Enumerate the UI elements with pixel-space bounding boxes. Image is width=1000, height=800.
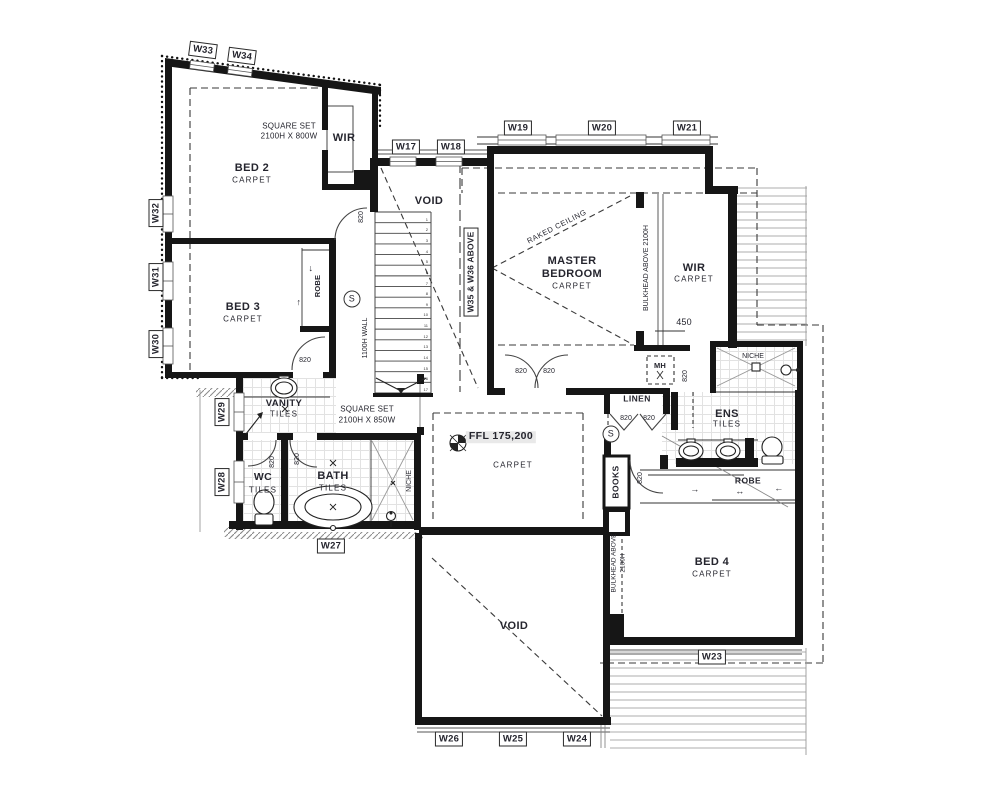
door-width-bed3: 820 bbox=[299, 357, 311, 365]
window-label-w20: W20 bbox=[588, 121, 616, 136]
door-width-master-2: 820 bbox=[543, 368, 555, 376]
smoke-alarm-symbol-linen: S bbox=[603, 426, 620, 443]
robe-arrow-up-icon: ↑ bbox=[297, 298, 302, 308]
window-label-w31: W31 bbox=[149, 263, 164, 291]
niche-label-bath: NICHE bbox=[406, 470, 414, 492]
door-width-wc: 820 bbox=[269, 456, 277, 468]
robe-arrow-both-icon: ↔ bbox=[735, 487, 744, 497]
door-width-linen-2: 820 bbox=[643, 415, 655, 423]
finish-label-bed2: CARPET bbox=[232, 177, 272, 186]
robe-label-bed4: ROBE bbox=[735, 476, 761, 485]
window-label-w19: W19 bbox=[504, 121, 532, 136]
window-label-w28: W28 bbox=[215, 468, 230, 496]
room-label-wir-master: WIR bbox=[683, 262, 706, 274]
window-label-w30: W30 bbox=[149, 330, 164, 358]
note-1100h-wall: 1100H WALL bbox=[362, 318, 370, 359]
finish-label-hall: CARPET bbox=[493, 462, 533, 471]
window-label-w32: W32 bbox=[149, 199, 164, 227]
window-label-w25: W25 bbox=[499, 732, 527, 747]
door-width-master-1: 820 bbox=[515, 368, 527, 376]
window-label-w23: W23 bbox=[698, 650, 726, 665]
finish-label-vanity: TILES bbox=[270, 411, 298, 420]
window-note-w35-w36: W35 & W36 ABOVE bbox=[464, 227, 479, 316]
manhole-label: MH bbox=[654, 362, 666, 370]
room-label-master-2: BEDROOM bbox=[542, 268, 602, 280]
window-label-w29: W29 bbox=[215, 398, 230, 426]
room-label-bed2: BED 2 bbox=[235, 162, 269, 174]
room-label-void-upper: VOID bbox=[415, 195, 444, 207]
room-label-bed4: BED 4 bbox=[695, 556, 729, 568]
books-label: BOOKS bbox=[611, 465, 620, 498]
finish-label-master: CARPET bbox=[552, 283, 592, 292]
note-bulkhead-bed4-l1: BULKHEAD ABOVE bbox=[610, 534, 617, 593]
door-width-bath: 820 bbox=[294, 453, 302, 465]
room-label-wc: WC bbox=[254, 472, 272, 484]
finish-label-bed4: CARPET bbox=[692, 571, 732, 580]
room-label-ens: ENS bbox=[715, 408, 739, 420]
note-square-set-800-l1: SQUARE SET bbox=[262, 123, 316, 132]
finish-label-bath: TILES bbox=[319, 485, 347, 494]
room-label-master-1: MASTER bbox=[548, 255, 597, 267]
bed4-door-arc bbox=[630, 460, 663, 493]
door-width-linen-1: 820 bbox=[620, 415, 632, 423]
door-width-bed2: 820 bbox=[358, 211, 366, 223]
robe-arrow-down-icon: ↓ bbox=[309, 264, 314, 274]
robe-label-bed3: ROBE bbox=[314, 275, 322, 297]
dimension-450: 450 bbox=[676, 318, 692, 328]
room-label-vanity: VANITY bbox=[266, 399, 303, 409]
room-label-linen: LINEN bbox=[623, 394, 651, 403]
note-bulkhead-bed4-l2: 2100H bbox=[619, 553, 626, 572]
floor-plan-linework bbox=[0, 0, 1000, 800]
window-label-w27: W27 bbox=[317, 539, 345, 554]
finish-label-wc: TILES bbox=[249, 487, 277, 496]
toilet-icon-ens bbox=[762, 437, 783, 464]
note-square-set-850-l1: SQUARE SET bbox=[340, 406, 394, 415]
door-width-ens: 820 bbox=[682, 370, 690, 382]
note-square-set-850-l2: 2100H X 850W bbox=[339, 417, 396, 426]
ffl-marker-icon bbox=[450, 435, 466, 451]
window-label-w17: W17 bbox=[392, 140, 420, 155]
niche-label-ens: NICHE bbox=[742, 353, 764, 361]
note-ffl-level: FFL 175,200 bbox=[466, 431, 536, 443]
finish-label-ens: TILES bbox=[713, 421, 741, 430]
room-label-wir-bed2: WIR bbox=[333, 132, 356, 144]
robe-arrow-right-icon: → bbox=[690, 485, 699, 495]
note-bulkhead-master: BULKHEAD ABOVE 2100H bbox=[643, 225, 651, 311]
room-label-void-lower: VOID bbox=[500, 620, 529, 632]
window-label-w18: W18 bbox=[437, 140, 465, 155]
window-label-w24: W24 bbox=[563, 732, 591, 747]
smoke-alarm-symbol-hall: S bbox=[344, 291, 361, 308]
room-label-bath: BATH bbox=[317, 470, 348, 482]
door-width-bed4-entry: 820 bbox=[637, 472, 645, 484]
linen-bifold-doors bbox=[610, 414, 666, 430]
floor-plan: W33 W34 W32 W31 W30 W29 W28 W27 W17 W18 … bbox=[0, 0, 1000, 800]
window-label-w26: W26 bbox=[435, 732, 463, 747]
finish-label-wir-master: CARPET bbox=[674, 276, 714, 285]
note-square-set-800-l2: 2100H X 800W bbox=[261, 133, 318, 142]
dotted-boundary bbox=[162, 56, 382, 379]
bed3-door-arc bbox=[292, 337, 325, 370]
robe-arrow-left-icon: ← bbox=[774, 484, 783, 494]
finish-label-bed3: CARPET bbox=[223, 316, 263, 325]
window-label-w21: W21 bbox=[673, 121, 701, 136]
room-label-bed3: BED 3 bbox=[226, 301, 260, 313]
